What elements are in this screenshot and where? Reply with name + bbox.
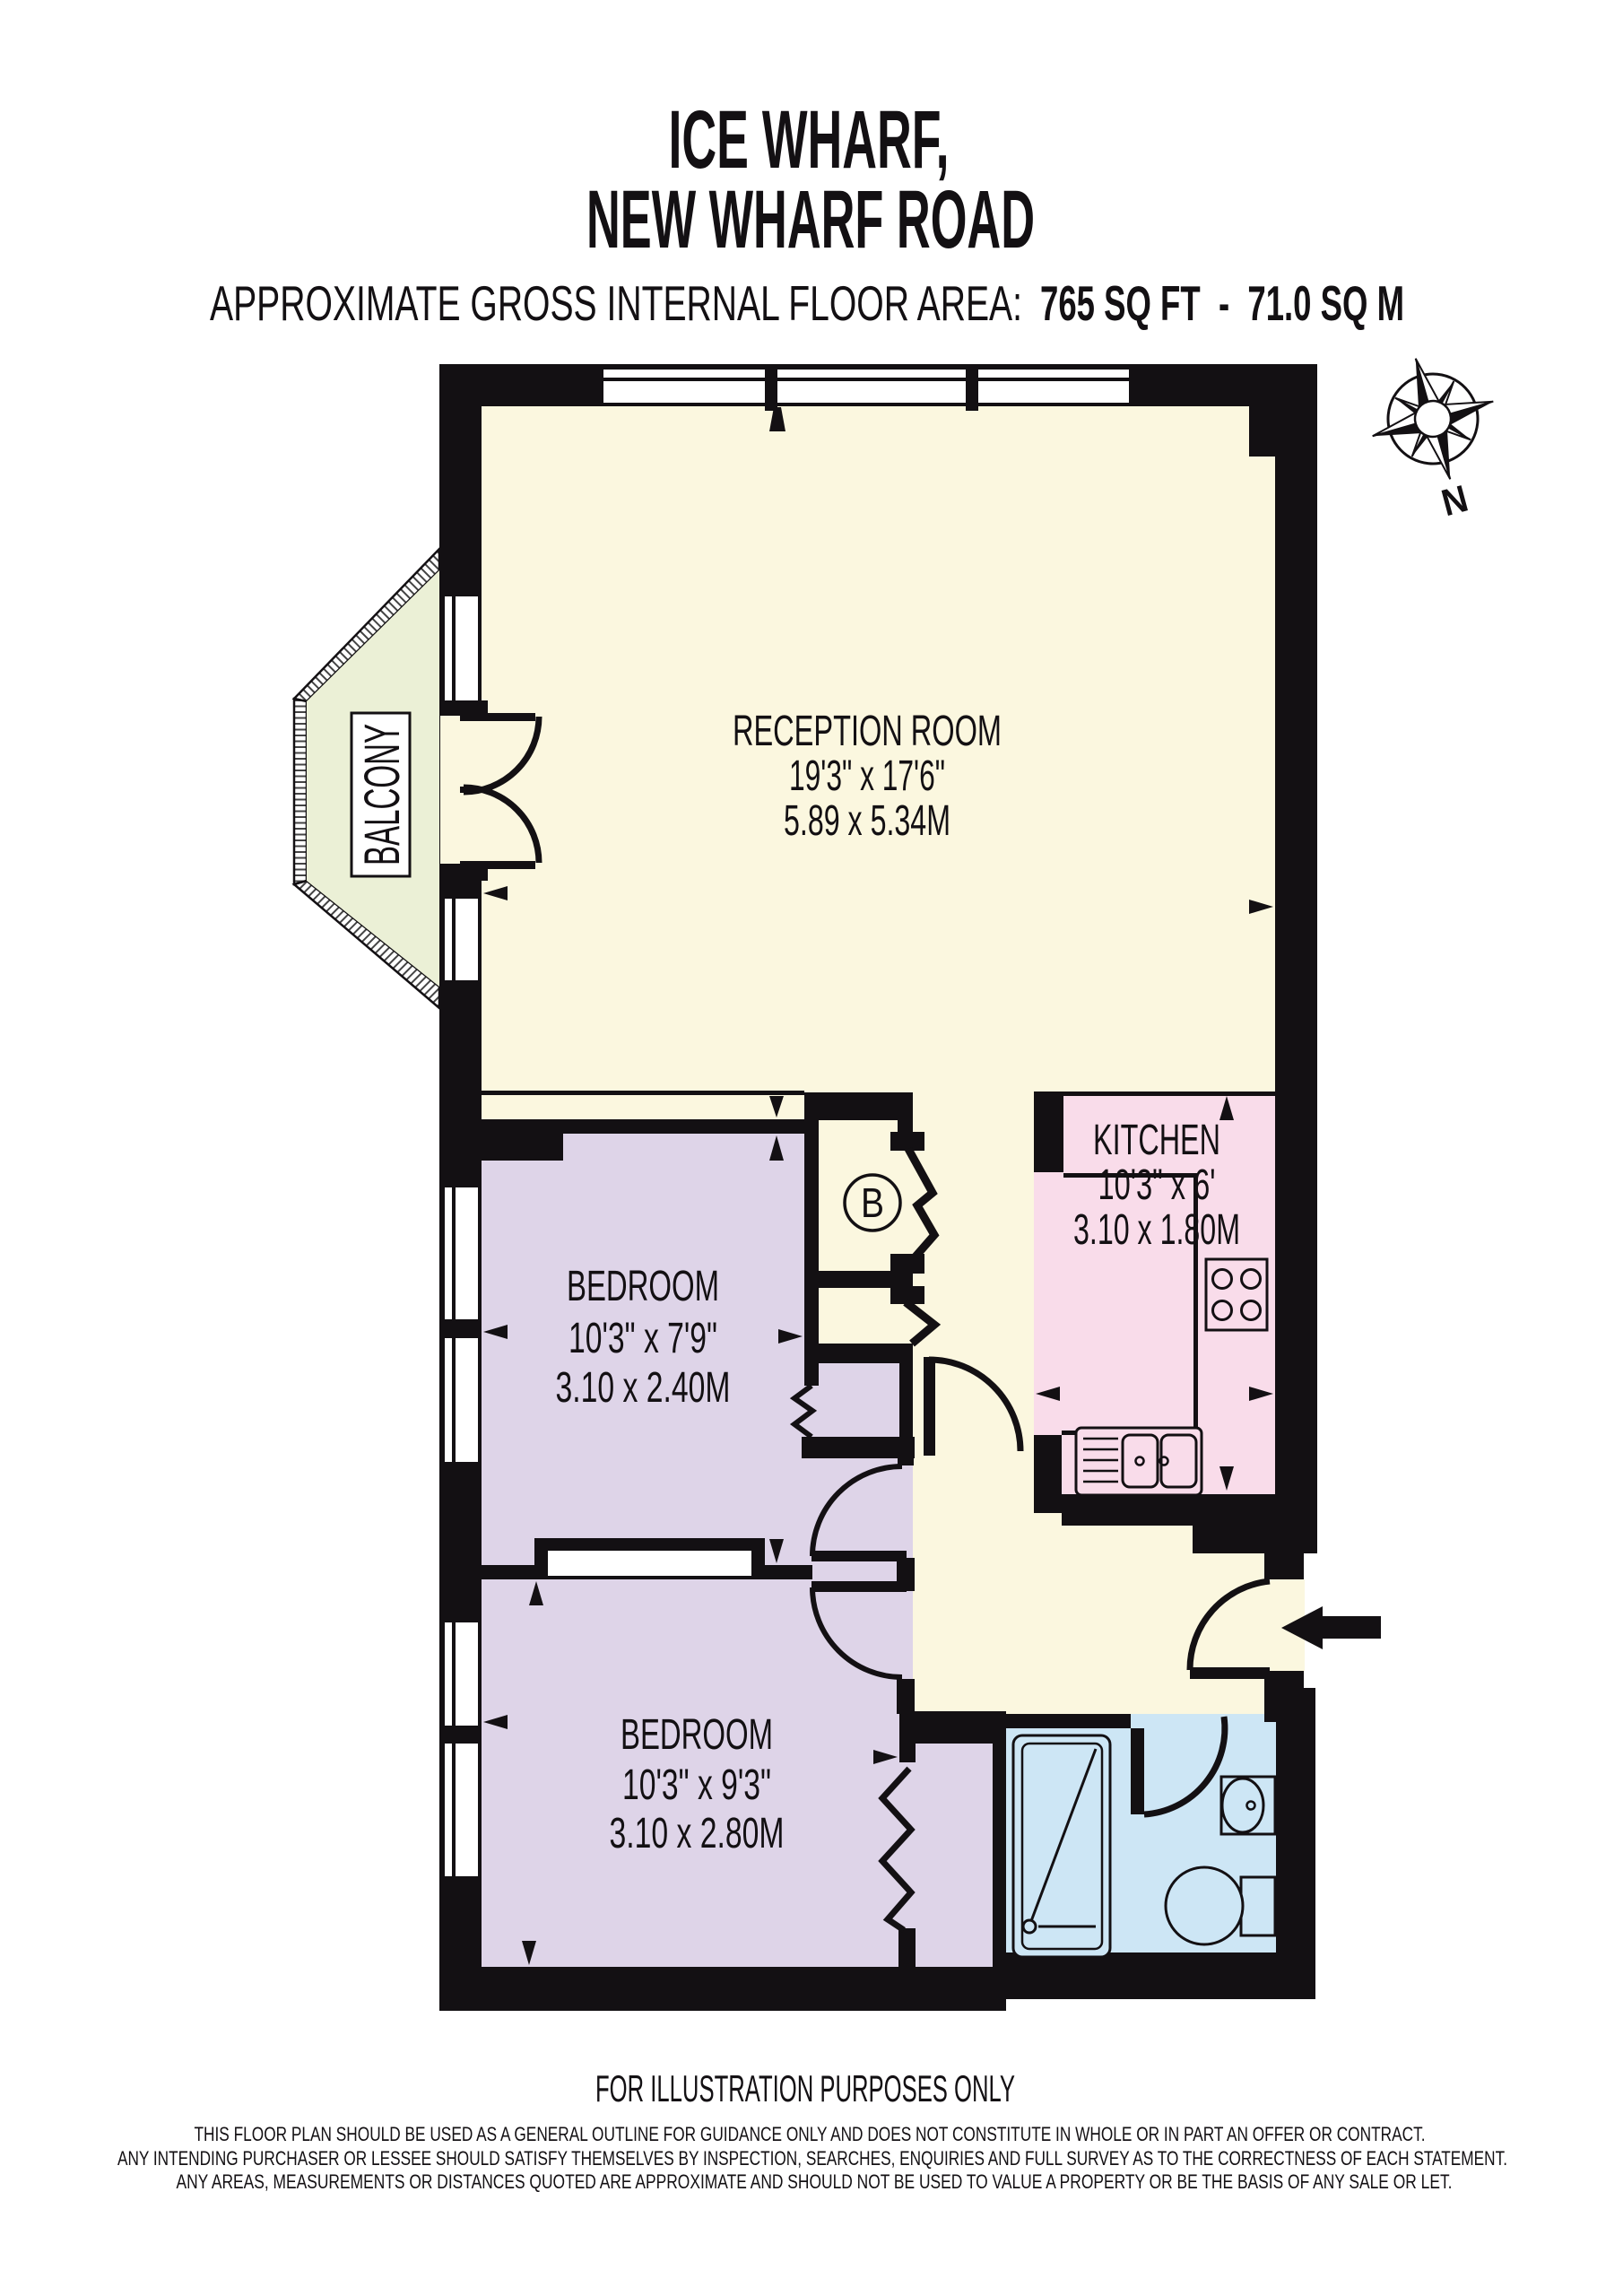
svg-text:KITCHEN: KITCHEN bbox=[1093, 1117, 1220, 1164]
svg-text:ANY AREAS, MEASUREMENTS OR DIS: ANY AREAS, MEASUREMENTS OR DISTANCES QUO… bbox=[177, 2170, 1453, 2193]
svg-text:ICE WHARF,: ICE WHARF, bbox=[669, 94, 950, 186]
svg-text:10'3" x 9'3": 10'3" x 9'3" bbox=[622, 1761, 771, 1809]
svg-text:3.10 x 2.40M: 3.10 x 2.40M bbox=[556, 1364, 731, 1412]
svg-text:10'3" x 6': 10'3" x 6' bbox=[1098, 1161, 1216, 1209]
svg-text:FOR ILLUSTRATION PURPOSES ONLY: FOR ILLUSTRATION PURPOSES ONLY bbox=[595, 2067, 1015, 2109]
svg-text:B: B bbox=[861, 1179, 884, 1226]
svg-text:BEDROOM: BEDROOM bbox=[621, 1711, 773, 1759]
svg-text:NEW WHARF ROAD: NEW WHARF ROAD bbox=[586, 174, 1035, 265]
svg-text:ANY INTENDING PURCHASER OR LES: ANY INTENDING PURCHASER OR LESSEE SHOULD… bbox=[117, 2147, 1507, 2170]
svg-text:10'3" x 7'9": 10'3" x 7'9" bbox=[568, 1315, 717, 1362]
svg-text:APPROXIMATE GROSS INTERNAL FLO: APPROXIMATE GROSS INTERNAL FLOOR AREA: bbox=[210, 275, 1022, 331]
svg-text:3.10 x 2.80M: 3.10 x 2.80M bbox=[610, 1810, 785, 1857]
svg-text:765 SQ FT - 71.0 SQ M: 765 SQ FT - 71.0 SQ M bbox=[1040, 275, 1404, 331]
svg-text:THIS FLOOR PLAN SHOULD BE USED: THIS FLOOR PLAN SHOULD BE USED AS A GENE… bbox=[195, 2123, 1426, 2145]
svg-text:5.89 x 5.34M: 5.89 x 5.34M bbox=[784, 797, 950, 845]
svg-text:BEDROOM: BEDROOM bbox=[567, 1263, 719, 1310]
svg-text:RECEPTION ROOM: RECEPTION ROOM bbox=[733, 708, 1002, 755]
svg-text:BALCONY: BALCONY bbox=[353, 724, 410, 865]
svg-text:19'3" x 17'6": 19'3" x 17'6" bbox=[789, 752, 945, 800]
svg-text:3.10 x 1.80M: 3.10 x 1.80M bbox=[1073, 1206, 1240, 1254]
